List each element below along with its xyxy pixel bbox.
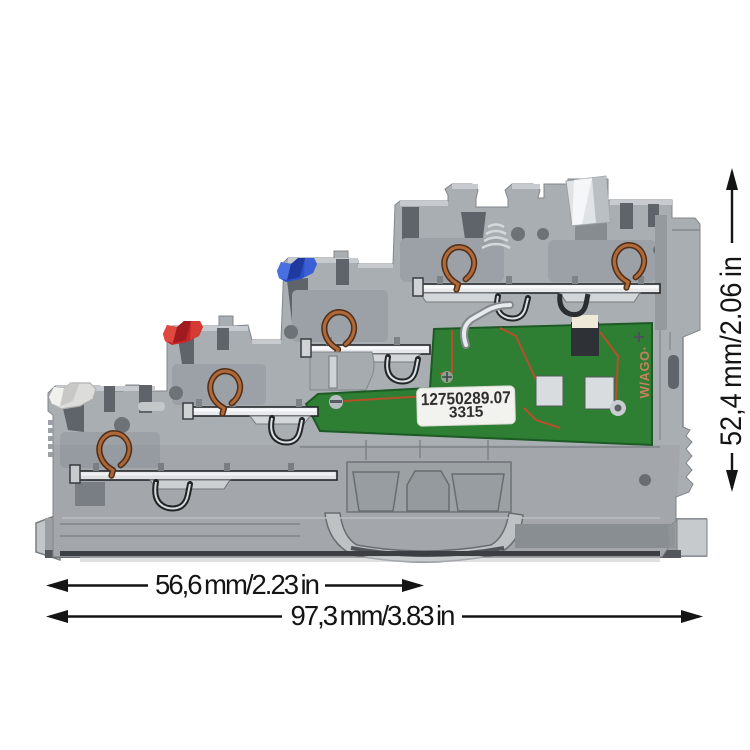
svg-text:3315: 3315: [449, 404, 484, 422]
svg-text:W/AGO·: W/AGO·: [637, 346, 652, 399]
svg-text:97,3 mm/3.83 in: 97,3 mm/3.83 in: [291, 600, 455, 631]
svg-text:52,4 mm/2.06 in: 52,4 mm/2.06 in: [715, 256, 748, 446]
svg-text:56,6 mm/2.23 in: 56,6 mm/2.23 in: [155, 569, 319, 600]
